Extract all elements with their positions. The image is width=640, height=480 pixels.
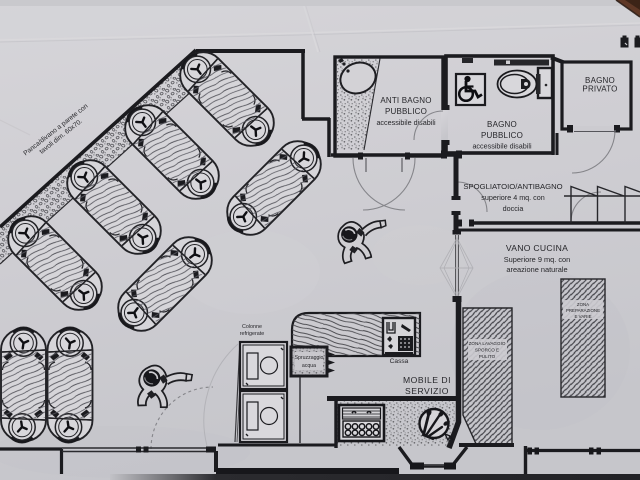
svg-text:SERVIZIO: SERVIZIO (405, 386, 449, 396)
svg-text:PUBBLICO: PUBBLICO (481, 131, 523, 140)
svg-text:Spruzzaggio: Spruzzaggio (295, 355, 324, 361)
svg-text:Cassa: Cassa (390, 358, 409, 365)
svg-text:accessibile disabili: accessibile disabili (376, 118, 436, 127)
svg-text:VANO CUCINA: VANO CUCINA (506, 243, 568, 253)
svg-text:areazione naturale: areazione naturale (506, 265, 567, 274)
svg-text:SPORCO E: SPORCO E (475, 348, 499, 353)
svg-text:PUBBLICO: PUBBLICO (385, 107, 427, 116)
svg-text:MOBILE DI: MOBILE DI (403, 375, 451, 385)
svg-text:doccia: doccia (503, 204, 524, 213)
svg-text:ANTI BAGNO: ANTI BAGNO (380, 96, 431, 105)
svg-text:Colonne: Colonne (242, 324, 262, 330)
svg-text:accessibile disabili: accessibile disabili (472, 142, 532, 151)
svg-text:ZONA LAVAGGIO: ZONA LAVAGGIO (469, 341, 506, 346)
svg-text:Superiore 9 mq. con: Superiore 9 mq. con (504, 255, 571, 264)
svg-text:E VARIE: E VARIE (575, 314, 592, 319)
svg-text:BAGNO: BAGNO (487, 120, 517, 129)
svg-text:acqua: acqua (302, 363, 316, 369)
svg-text:PRIVATO: PRIVATO (582, 85, 617, 94)
svg-text:PREPARAZIONE: PREPARAZIONE (566, 308, 600, 313)
svg-text:PULITO: PULITO (479, 354, 496, 359)
svg-text:SPOGLIATOIO/ANTIBAGNO: SPOGLIATOIO/ANTIBAGNO (463, 182, 562, 191)
svg-text:ZONA: ZONA (577, 302, 589, 307)
svg-text:superiore 4 mq. con: superiore 4 mq. con (481, 193, 545, 202)
svg-text:refrigerate: refrigerate (240, 331, 265, 337)
